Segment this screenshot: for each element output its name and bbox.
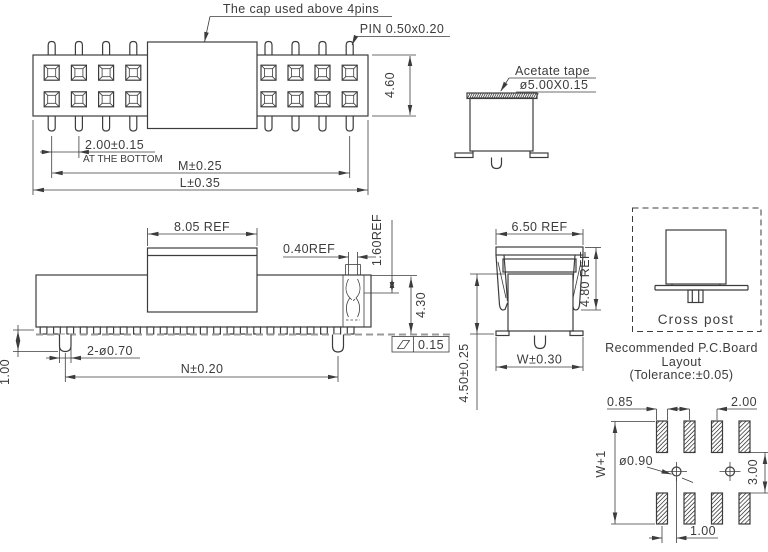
tape-view: Acetate tape ø5.00X0.15 bbox=[455, 64, 596, 169]
dim-side-cap-height: 4.80 REF bbox=[578, 251, 592, 307]
dim-row-gap: 3.00 bbox=[746, 459, 760, 485]
flatness-symbol bbox=[398, 341, 410, 349]
dim-holes: 2-ø0.70 bbox=[87, 344, 133, 358]
solder-pads bbox=[657, 421, 751, 524]
tape-note-line2: ø5.00X0.15 bbox=[520, 78, 589, 92]
connector-datasheet-drawing: The cap used above 4pins PIN 0.50x0.20 4… bbox=[0, 0, 768, 552]
pick-cap bbox=[148, 42, 258, 129]
dim-pad-width: 0.85 bbox=[607, 395, 633, 409]
locating-peg-left bbox=[60, 335, 72, 352]
cross-post-body bbox=[666, 230, 726, 284]
tape-view-body bbox=[470, 98, 533, 151]
dim-l: L±0.35 bbox=[180, 176, 221, 190]
cross-post-pin bbox=[688, 290, 703, 303]
cross-post-option: Cross post bbox=[633, 208, 762, 332]
pcb-layout: Recommended P.C.Board Layout (Tolerance:… bbox=[594, 341, 768, 543]
dim-pcb-height: W+1 bbox=[594, 450, 608, 477]
dim-front-height: 4.30 bbox=[414, 292, 428, 318]
pcb-holes bbox=[666, 462, 741, 481]
tape-note-line1: Acetate tape bbox=[515, 64, 590, 78]
dim-span: N±0.20 bbox=[181, 362, 224, 376]
side-view-body bbox=[508, 274, 573, 331]
dim-slot-depth: 1.60REF bbox=[370, 214, 384, 266]
smt-leads bbox=[40, 327, 354, 334]
dim-pad-pitch: 2.00 bbox=[731, 395, 757, 409]
dim-cap-width: 8.05 REF bbox=[174, 220, 230, 234]
flatness-callout: 0.15 bbox=[392, 337, 449, 353]
dim-4_60: 4.60 bbox=[383, 72, 397, 98]
pcb-title-line3: (Tolerance:±0.05) bbox=[630, 368, 734, 382]
side-cap-top bbox=[496, 247, 583, 255]
technical-drawing-canvas: The cap used above 4pins PIN 0.50x0.20 4… bbox=[0, 0, 768, 552]
side-view: 6.50 REF 4.80 REF 4.50±0.25 W±0.30 bbox=[457, 220, 601, 410]
dim-peg-length: 1.00 bbox=[0, 359, 12, 385]
front-view: 8.05 REF 0.40REF 1.60REF 4.30 bbox=[0, 214, 450, 385]
dim-side-cap-width: 6.50 REF bbox=[511, 220, 567, 234]
cross-post-label: Cross post bbox=[658, 312, 735, 327]
pcb-title-line1: Recommended P.C.Board bbox=[605, 341, 758, 355]
dim-slot-width: 0.40REF bbox=[283, 242, 335, 256]
side-cap-slot bbox=[503, 259, 576, 272]
front-view-cap bbox=[148, 248, 258, 312]
dim-total-height: 4.50±0.25 bbox=[457, 343, 471, 402]
dim-width: W±0.30 bbox=[517, 353, 562, 367]
cap-note-label: The cap used above 4pins bbox=[223, 2, 379, 16]
dim-m: M±0.25 bbox=[178, 159, 222, 173]
side-solder-peg bbox=[535, 336, 546, 349]
dim-hole-offset: 1.00 bbox=[690, 524, 716, 538]
flatness-value: 0.15 bbox=[418, 338, 444, 352]
solder-peg bbox=[492, 158, 502, 169]
pitch-note: AT THE BOTTOM bbox=[83, 154, 163, 165]
dim-hole-dia: ø0.90 bbox=[619, 454, 653, 468]
dim-pitch: 2.00±0.15 bbox=[85, 138, 144, 152]
pin-note-label: PIN 0.50x0.20 bbox=[360, 22, 444, 36]
locating-peg-right bbox=[333, 335, 344, 353]
top-view: The cap used above 4pins PIN 0.50x0.20 4… bbox=[33, 2, 450, 195]
pcb-title-line2: Layout bbox=[662, 355, 702, 369]
